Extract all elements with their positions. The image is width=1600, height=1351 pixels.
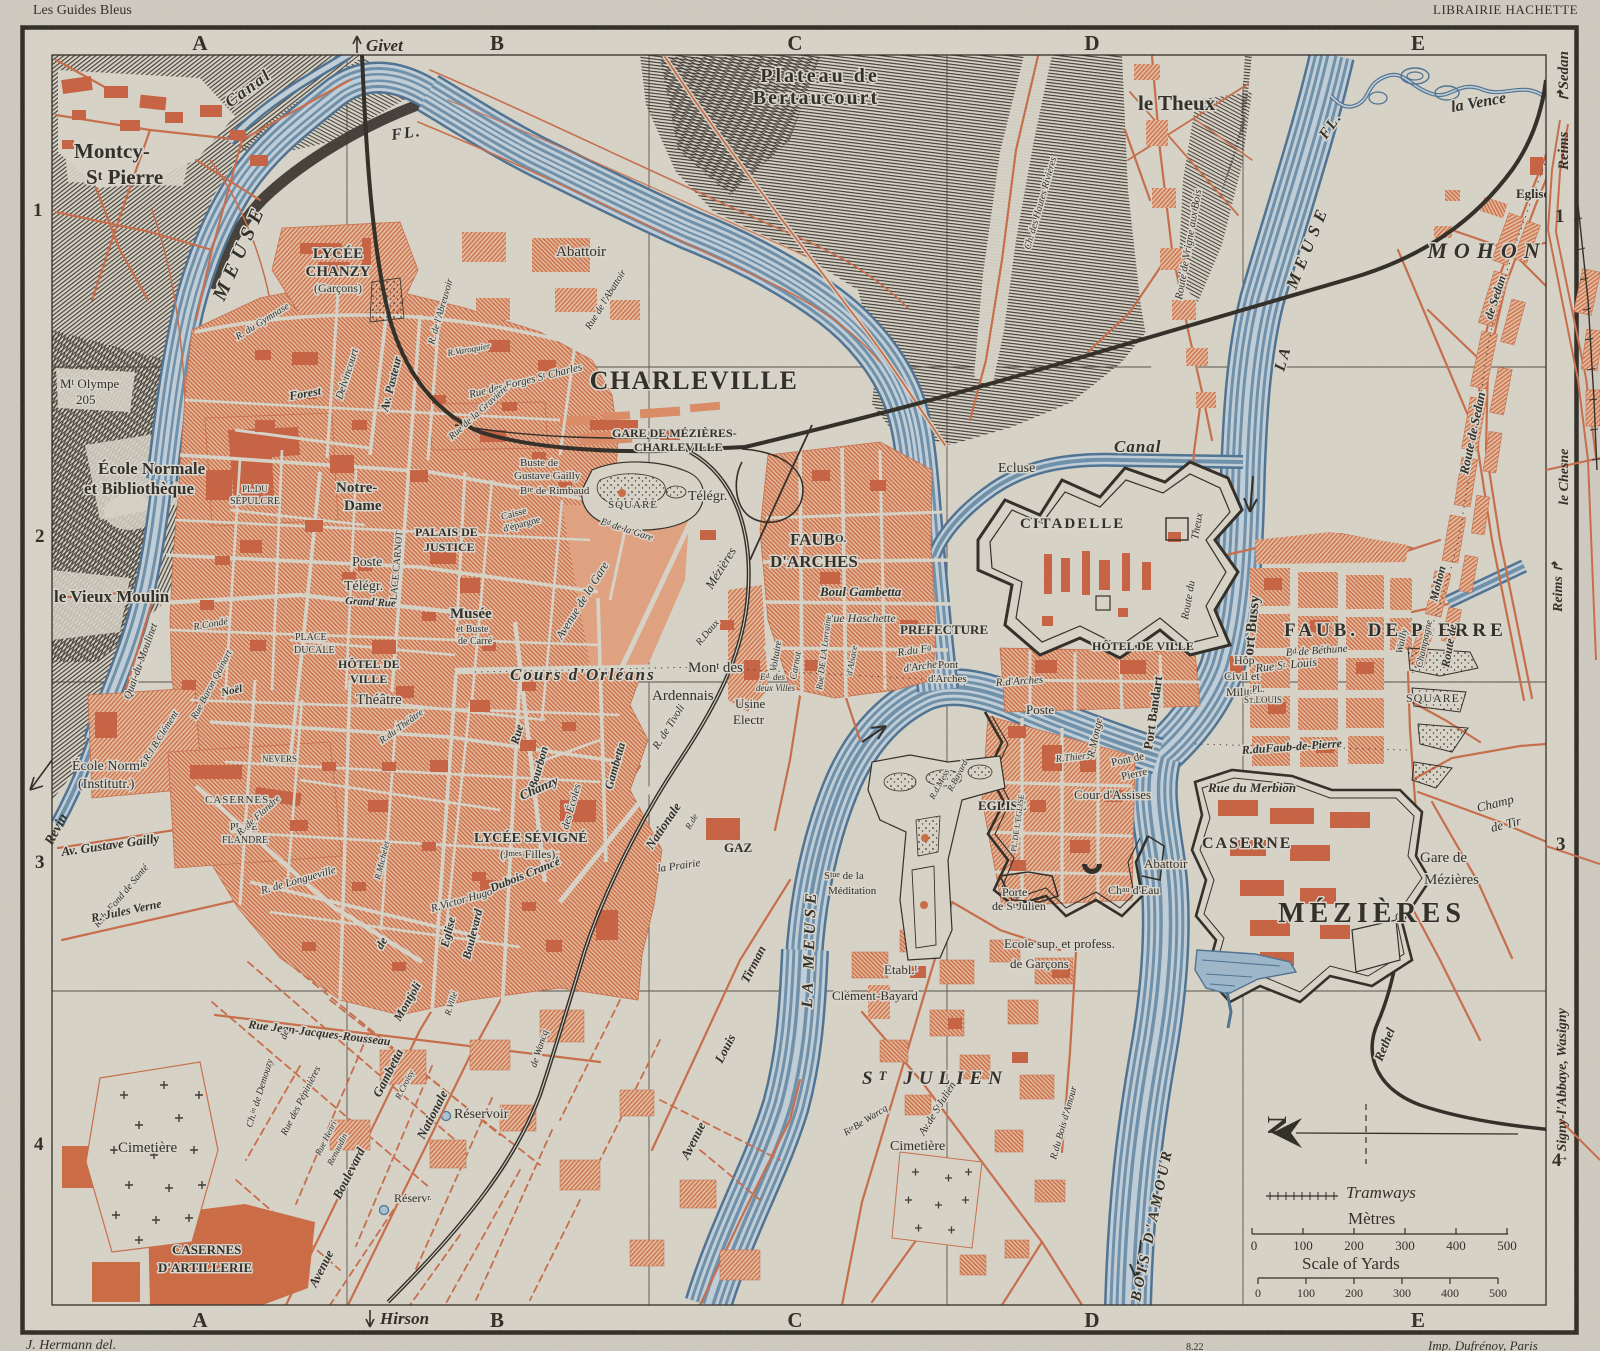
- svg-text:St Pierre: St Pierre: [86, 165, 163, 189]
- svg-text:3: 3: [35, 852, 45, 873]
- svg-text:et Bibliothèque: et Bibliothèque: [84, 479, 194, 498]
- svg-text:LYCÉE: LYCÉE: [313, 245, 363, 262]
- svg-text:Mètres: Mètres: [1348, 1209, 1395, 1228]
- svg-text:deux Villes: deux Villes: [756, 683, 796, 693]
- svg-text:300: 300: [1393, 1286, 1411, 1300]
- svg-text:Ecole sup. et profess.: Ecole sup. et profess.: [1004, 936, 1115, 951]
- svg-text:Mont des: Mont des: [688, 660, 743, 676]
- svg-text:Musée: Musée: [450, 606, 492, 622]
- svg-text:205: 205: [76, 392, 96, 407]
- svg-text:VILLE: VILLE: [350, 672, 387, 686]
- svg-text:Bertaucourt: Bertaucourt: [753, 87, 879, 109]
- svg-text:et Buste: et Buste: [456, 624, 489, 635]
- svg-text:LYCÉE SÉVIGNÉ: LYCÉE SÉVIGNÉ: [474, 829, 587, 846]
- svg-text:A: A: [192, 1308, 208, 1332]
- svg-text:4: 4: [34, 1134, 44, 1155]
- svg-text:DUCALE: DUCALE: [294, 645, 335, 656]
- svg-text:D: D: [1084, 1308, 1099, 1332]
- svg-text:Stue de la: Stue de la: [824, 870, 864, 882]
- svg-text:Mézières: Mézières: [1424, 872, 1479, 888]
- svg-text:Plateau de: Plateau de: [760, 65, 879, 87]
- svg-text:CITADELLE: CITADELLE: [1020, 516, 1125, 532]
- svg-text:C: C: [787, 31, 802, 55]
- svg-text:d'Arches: d'Arches: [928, 673, 967, 685]
- svg-text:de Garçons: de Garçons: [1010, 956, 1069, 971]
- svg-text:Poste: Poste: [1026, 702, 1054, 717]
- svg-text:Bd. des: Bd. des: [760, 672, 785, 682]
- svg-text:CASERNES: CASERNES: [205, 794, 269, 806]
- svg-text:Scale of Yards: Scale of Yards: [1302, 1254, 1400, 1273]
- svg-text:Cour d'Assises: Cour d'Assises: [1074, 787, 1151, 802]
- svg-text:Montcy-: Montcy-: [74, 139, 150, 163]
- svg-text:Cours d'Orléans: Cours d'Orléans: [510, 665, 656, 684]
- svg-text:D: D: [1084, 31, 1099, 55]
- svg-text:PLACE: PLACE: [295, 632, 327, 643]
- svg-text:Hirson: Hirson: [379, 1309, 429, 1328]
- svg-text:Cimetière: Cimetière: [118, 1140, 177, 1156]
- svg-text:Cimetière: Cimetière: [890, 1139, 945, 1154]
- svg-text:D'ARCHES: D'ARCHES: [770, 552, 858, 571]
- svg-text:Gustave Gailly: Gustave Gailly: [514, 470, 581, 482]
- svg-text:0: 0: [1255, 1286, 1261, 1300]
- svg-text:Gare de: Gare de: [1420, 850, 1467, 866]
- svg-text:Dame: Dame: [344, 498, 382, 514]
- svg-text:Abattoir: Abattoir: [556, 244, 606, 260]
- svg-text:1: 1: [33, 200, 43, 221]
- svg-text:le Vieux Moulin: le Vieux Moulin: [54, 587, 170, 606]
- svg-text:Ardennais: Ardennais: [652, 688, 714, 704]
- svg-text:J. Hermann del.: J. Hermann del.: [26, 1338, 116, 1351]
- svg-text:MÉZIÈRES: MÉZIÈRES: [1278, 898, 1466, 929]
- svg-text:CHANZY: CHANZY: [305, 264, 370, 280]
- svg-text:de Carré: de Carré: [458, 636, 493, 647]
- svg-text:GARE DE MÉZIÈRES-: GARE DE MÉZIÈRES-: [612, 426, 737, 440]
- svg-text:Canal: Canal: [1114, 437, 1162, 456]
- svg-text:CASERNES: CASERNES: [172, 1242, 241, 1257]
- svg-text:de St.Julien: de St.Julien: [992, 899, 1046, 913]
- svg-text:E: E: [1411, 31, 1425, 55]
- svg-text:SÉPULCRE: SÉPULCRE: [230, 495, 280, 507]
- svg-text:100: 100: [1297, 1286, 1315, 1300]
- svg-text:PL.DU: PL.DU: [242, 484, 268, 494]
- svg-text:200: 200: [1345, 1286, 1363, 1300]
- svg-text:500: 500: [1497, 1238, 1517, 1253]
- svg-text:1: 1: [1555, 206, 1565, 227]
- svg-text:500: 500: [1489, 1286, 1507, 1300]
- svg-text:FAUB. DE PIERRE: FAUB. DE PIERRE: [1284, 620, 1507, 641]
- svg-text:JUSTICE: JUSTICE: [424, 540, 475, 554]
- svg-text:Buste de: Buste de: [520, 457, 558, 469]
- svg-text:le Chesne: le Chesne: [1557, 449, 1572, 505]
- svg-text:200: 200: [1344, 1238, 1364, 1253]
- svg-text:2: 2: [35, 526, 45, 547]
- svg-text:CHARLEVILLE: CHARLEVILLE: [634, 440, 723, 454]
- svg-text:Réservr.: Réservr.: [394, 1191, 432, 1205]
- svg-text:Abattoir: Abattoir: [1144, 856, 1188, 871]
- svg-text:Givet: Givet: [366, 36, 404, 55]
- svg-text:le Theux: le Theux: [1138, 91, 1216, 115]
- svg-text:Civil et: Civil et: [1224, 669, 1260, 683]
- svg-text:ST.LOUIS: ST.LOUIS: [1244, 695, 1282, 705]
- svg-text:100: 100: [1293, 1238, 1313, 1253]
- svg-text:B: B: [490, 31, 504, 55]
- svg-text:Pont: Pont: [938, 659, 958, 671]
- svg-text:300: 300: [1395, 1238, 1415, 1253]
- svg-text:Méditation: Méditation: [828, 885, 877, 897]
- svg-text:HÔTEL DE VILLE: HÔTEL DE VILLE: [1092, 639, 1194, 653]
- svg-text:C: C: [787, 1308, 802, 1332]
- svg-text:Rue du Merbion: Rue du Merbion: [1207, 780, 1296, 795]
- svg-text:Porte: Porte: [1002, 885, 1027, 899]
- svg-text:Poste: Poste: [352, 555, 382, 570]
- svg-text:A: A: [192, 31, 208, 55]
- svg-text:LIBRAIRIE HACHETTE: LIBRAIRIE HACHETTE: [1433, 2, 1578, 17]
- svg-text:B: B: [490, 1308, 504, 1332]
- svg-text:Mt Olympe: Mt Olympe: [60, 376, 119, 391]
- svg-text:400: 400: [1441, 1286, 1459, 1300]
- svg-text:CHARLEVILLE: CHARLEVILLE: [590, 366, 799, 395]
- svg-text:8.22: 8.22: [1186, 1342, 1204, 1351]
- svg-text:Reims ↱: Reims ↱: [1551, 561, 1566, 613]
- svg-text:Electr: Electr: [733, 712, 765, 727]
- svg-text:CASERNE: CASERNE: [1202, 835, 1292, 852]
- svg-text:Eglise: Eglise: [1516, 186, 1549, 201]
- svg-text:↓ Signy-l'Abbaye, Wasigny: ↓ Signy-l'Abbaye, Wasigny: [1555, 1007, 1570, 1162]
- svg-text:Ecluse: Ecluse: [998, 461, 1035, 476]
- svg-text:FLANDRE: FLANDRE: [222, 835, 268, 846]
- svg-text:Notre-: Notre-: [336, 480, 377, 496]
- svg-text:Usine: Usine: [735, 696, 766, 711]
- svg-text:Etabl.t: Etabl.t: [884, 962, 918, 977]
- svg-text:PL.: PL.: [1252, 684, 1265, 694]
- svg-text:0: 0: [1251, 1238, 1258, 1253]
- svg-text:↱Sedan: ↱Sedan: [1556, 51, 1572, 102]
- svg-text:Réservoir: Réservoir: [454, 1107, 509, 1122]
- svg-text:PALAIS DE: PALAIS DE: [415, 525, 478, 539]
- svg-text:Rue Haschette: Rue Haschette: [825, 611, 896, 625]
- svg-text:NEVERS: NEVERS: [262, 754, 297, 764]
- svg-text:E: E: [1411, 1308, 1425, 1332]
- svg-text:Théâtre: Théâtre: [356, 692, 402, 708]
- svg-text:3: 3: [1556, 834, 1566, 855]
- svg-text:Chau d'Eau: Chau d'Eau: [1108, 883, 1159, 897]
- svg-text:Les Guides Bleus: Les Guides Bleus: [33, 3, 132, 18]
- svg-text:Tramways: Tramways: [1346, 1183, 1416, 1202]
- svg-text:Télégr.: Télégr.: [344, 579, 383, 594]
- svg-text:Reims: Reims: [1556, 132, 1572, 171]
- svg-text:HÔTEL DE: HÔTEL DE: [338, 657, 400, 671]
- svg-text:Clément-Bayard: Clément-Bayard: [832, 988, 918, 1003]
- svg-text:SQUARE: SQUARE: [608, 499, 658, 511]
- svg-text:Hôp.: Hôp.: [1234, 653, 1258, 667]
- svg-text:D'ARTILLERIE: D'ARTILLERIE: [158, 1260, 252, 1275]
- svg-text:PREFECTURE: PREFECTURE: [900, 622, 988, 637]
- svg-text:École Normale: École Normale: [98, 459, 206, 478]
- svg-text:400: 400: [1446, 1238, 1466, 1253]
- svg-text:École Normle: École Normle: [72, 757, 148, 774]
- svg-text:MOHON: MOHON: [1426, 238, 1546, 263]
- svg-text:Imp. Dufrénoy, Paris: Imp. Dufrénoy, Paris: [1427, 1338, 1538, 1351]
- svg-text:N: N: [1262, 1116, 1292, 1136]
- svg-text:Boul Gambetta: Boul Gambetta: [819, 584, 902, 599]
- svg-text:SQUARE: SQUARE: [1406, 691, 1460, 705]
- svg-text:GAZ: GAZ: [724, 840, 753, 855]
- svg-text:Télégr.: Télégr.: [688, 489, 727, 504]
- svg-text:(Institutr.): (Institutr.): [78, 777, 135, 792]
- svg-text:(Garçons): (Garçons): [314, 281, 362, 295]
